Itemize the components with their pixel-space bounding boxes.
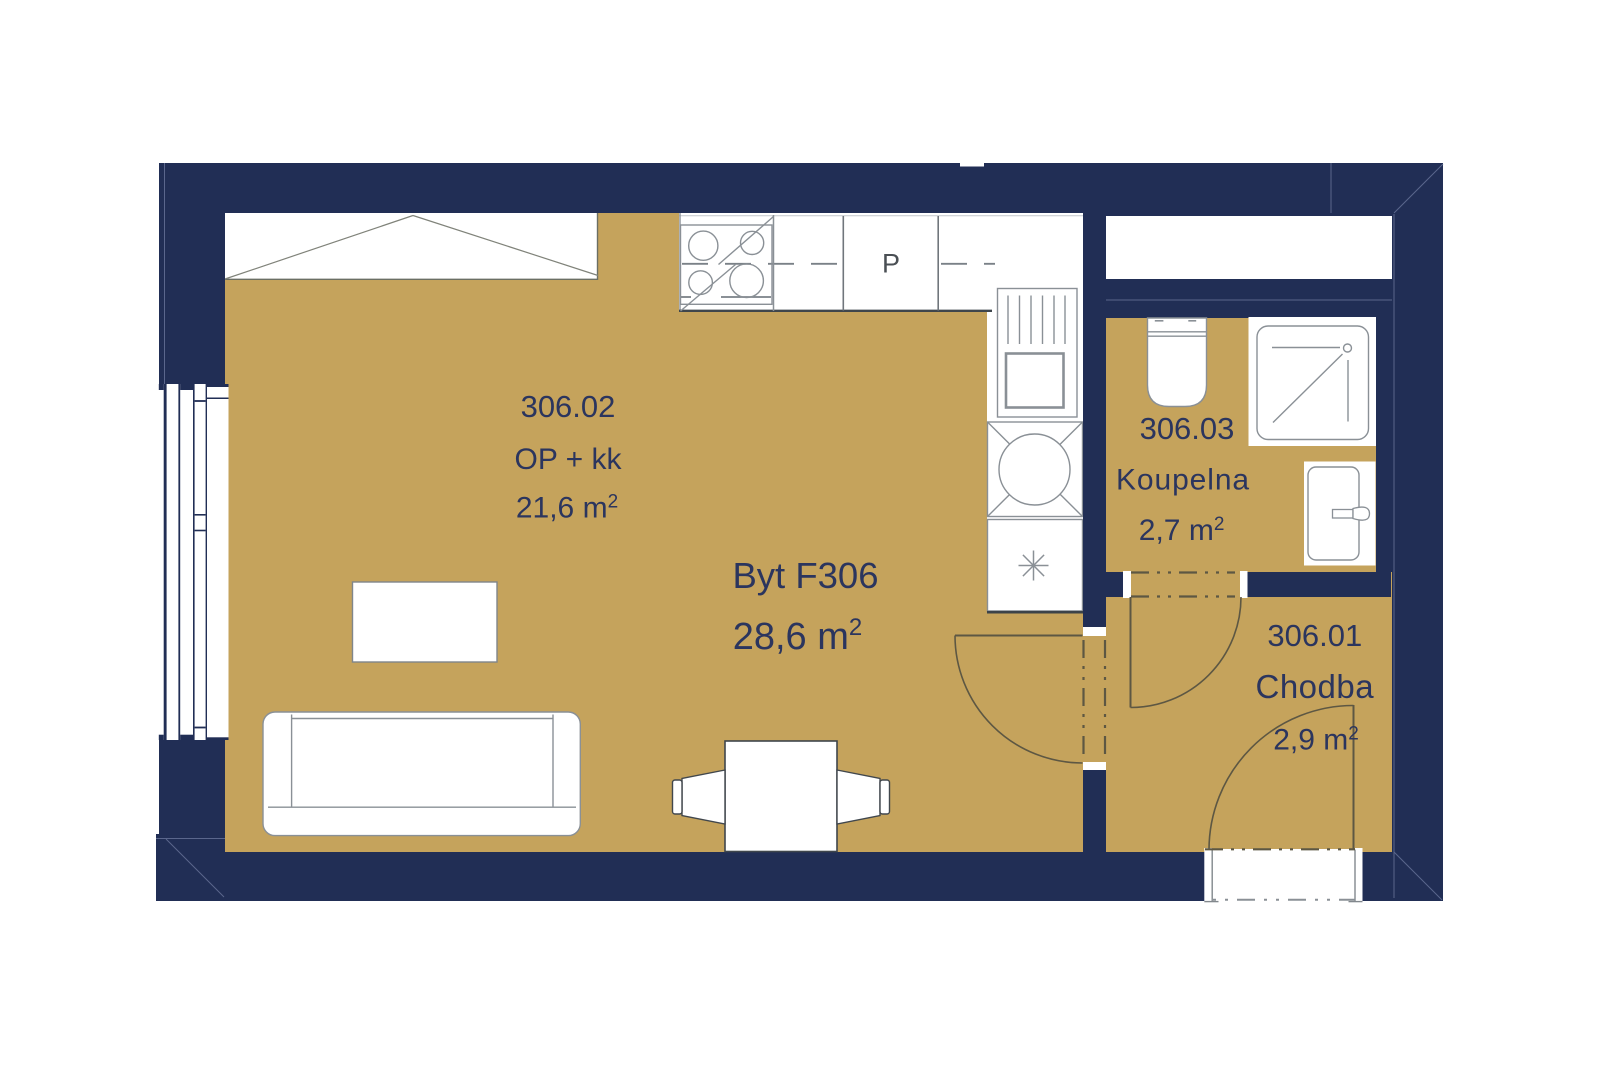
- svg-text:28,6 m2: 28,6 m2: [733, 614, 863, 658]
- svg-text:21,6 m2: 21,6 m2: [516, 492, 618, 525]
- svg-text:2,7 m2: 2,7 m2: [1139, 514, 1225, 547]
- svg-text:Chodba: Chodba: [1255, 668, 1374, 705]
- svg-text:Koupelna: Koupelna: [1116, 464, 1250, 497]
- svg-text:OP + kk: OP + kk: [515, 443, 623, 476]
- svg-text:306.01: 306.01: [1267, 618, 1362, 653]
- svg-text:306.03: 306.03: [1140, 411, 1235, 446]
- svg-text:P: P: [882, 249, 900, 279]
- svg-text:306.02: 306.02: [521, 389, 616, 424]
- svg-text:Byt F306: Byt F306: [732, 555, 878, 596]
- svg-text:2,9 m2: 2,9 m2: [1273, 724, 1359, 757]
